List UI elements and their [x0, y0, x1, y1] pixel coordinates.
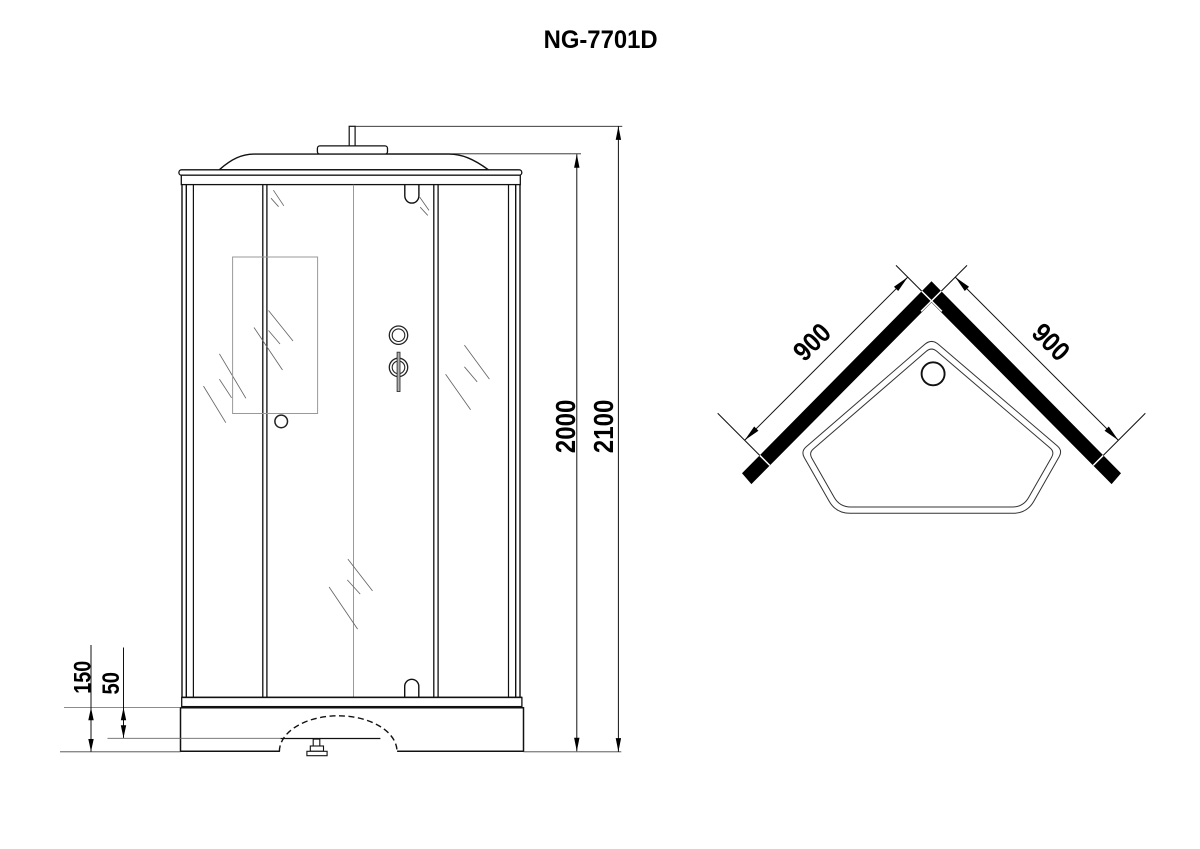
svg-text:2000: 2000 — [550, 400, 581, 454]
svg-text:50: 50 — [99, 672, 125, 694]
svg-text:2100: 2100 — [588, 400, 619, 454]
svg-text:NG-7701D: NG-7701D — [544, 26, 658, 54]
svg-text:150: 150 — [70, 661, 96, 694]
